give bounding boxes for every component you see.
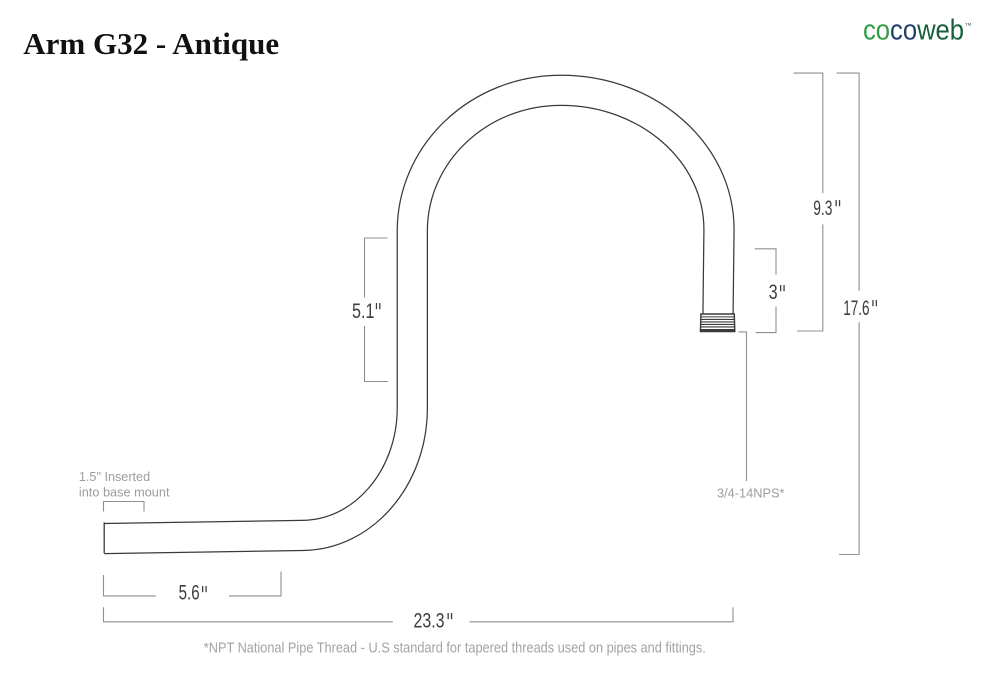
- svg-text:into base mount: into base mount: [79, 484, 170, 499]
- svg-text:™: ™: [965, 21, 973, 30]
- svg-text:1.5" Inserted: 1.5" Inserted: [79, 469, 150, 484]
- svg-text:3: 3: [769, 280, 778, 304]
- svg-text:3/4-14NPS*: 3/4-14NPS*: [717, 486, 785, 501]
- svg-text:9.3: 9.3: [813, 196, 832, 220]
- svg-text:*NPT National Pipe Thread - U.: *NPT National Pipe Thread - U.S standard…: [204, 641, 706, 657]
- svg-text:5.1: 5.1: [352, 299, 375, 323]
- svg-text:Arm G32 - Antique: Arm G32 - Antique: [23, 26, 279, 61]
- svg-text:17.6: 17.6: [843, 296, 869, 320]
- svg-text:23.3: 23.3: [414, 609, 445, 633]
- svg-text:cocoweb: cocoweb: [863, 15, 964, 47]
- svg-text:5.6: 5.6: [179, 581, 200, 605]
